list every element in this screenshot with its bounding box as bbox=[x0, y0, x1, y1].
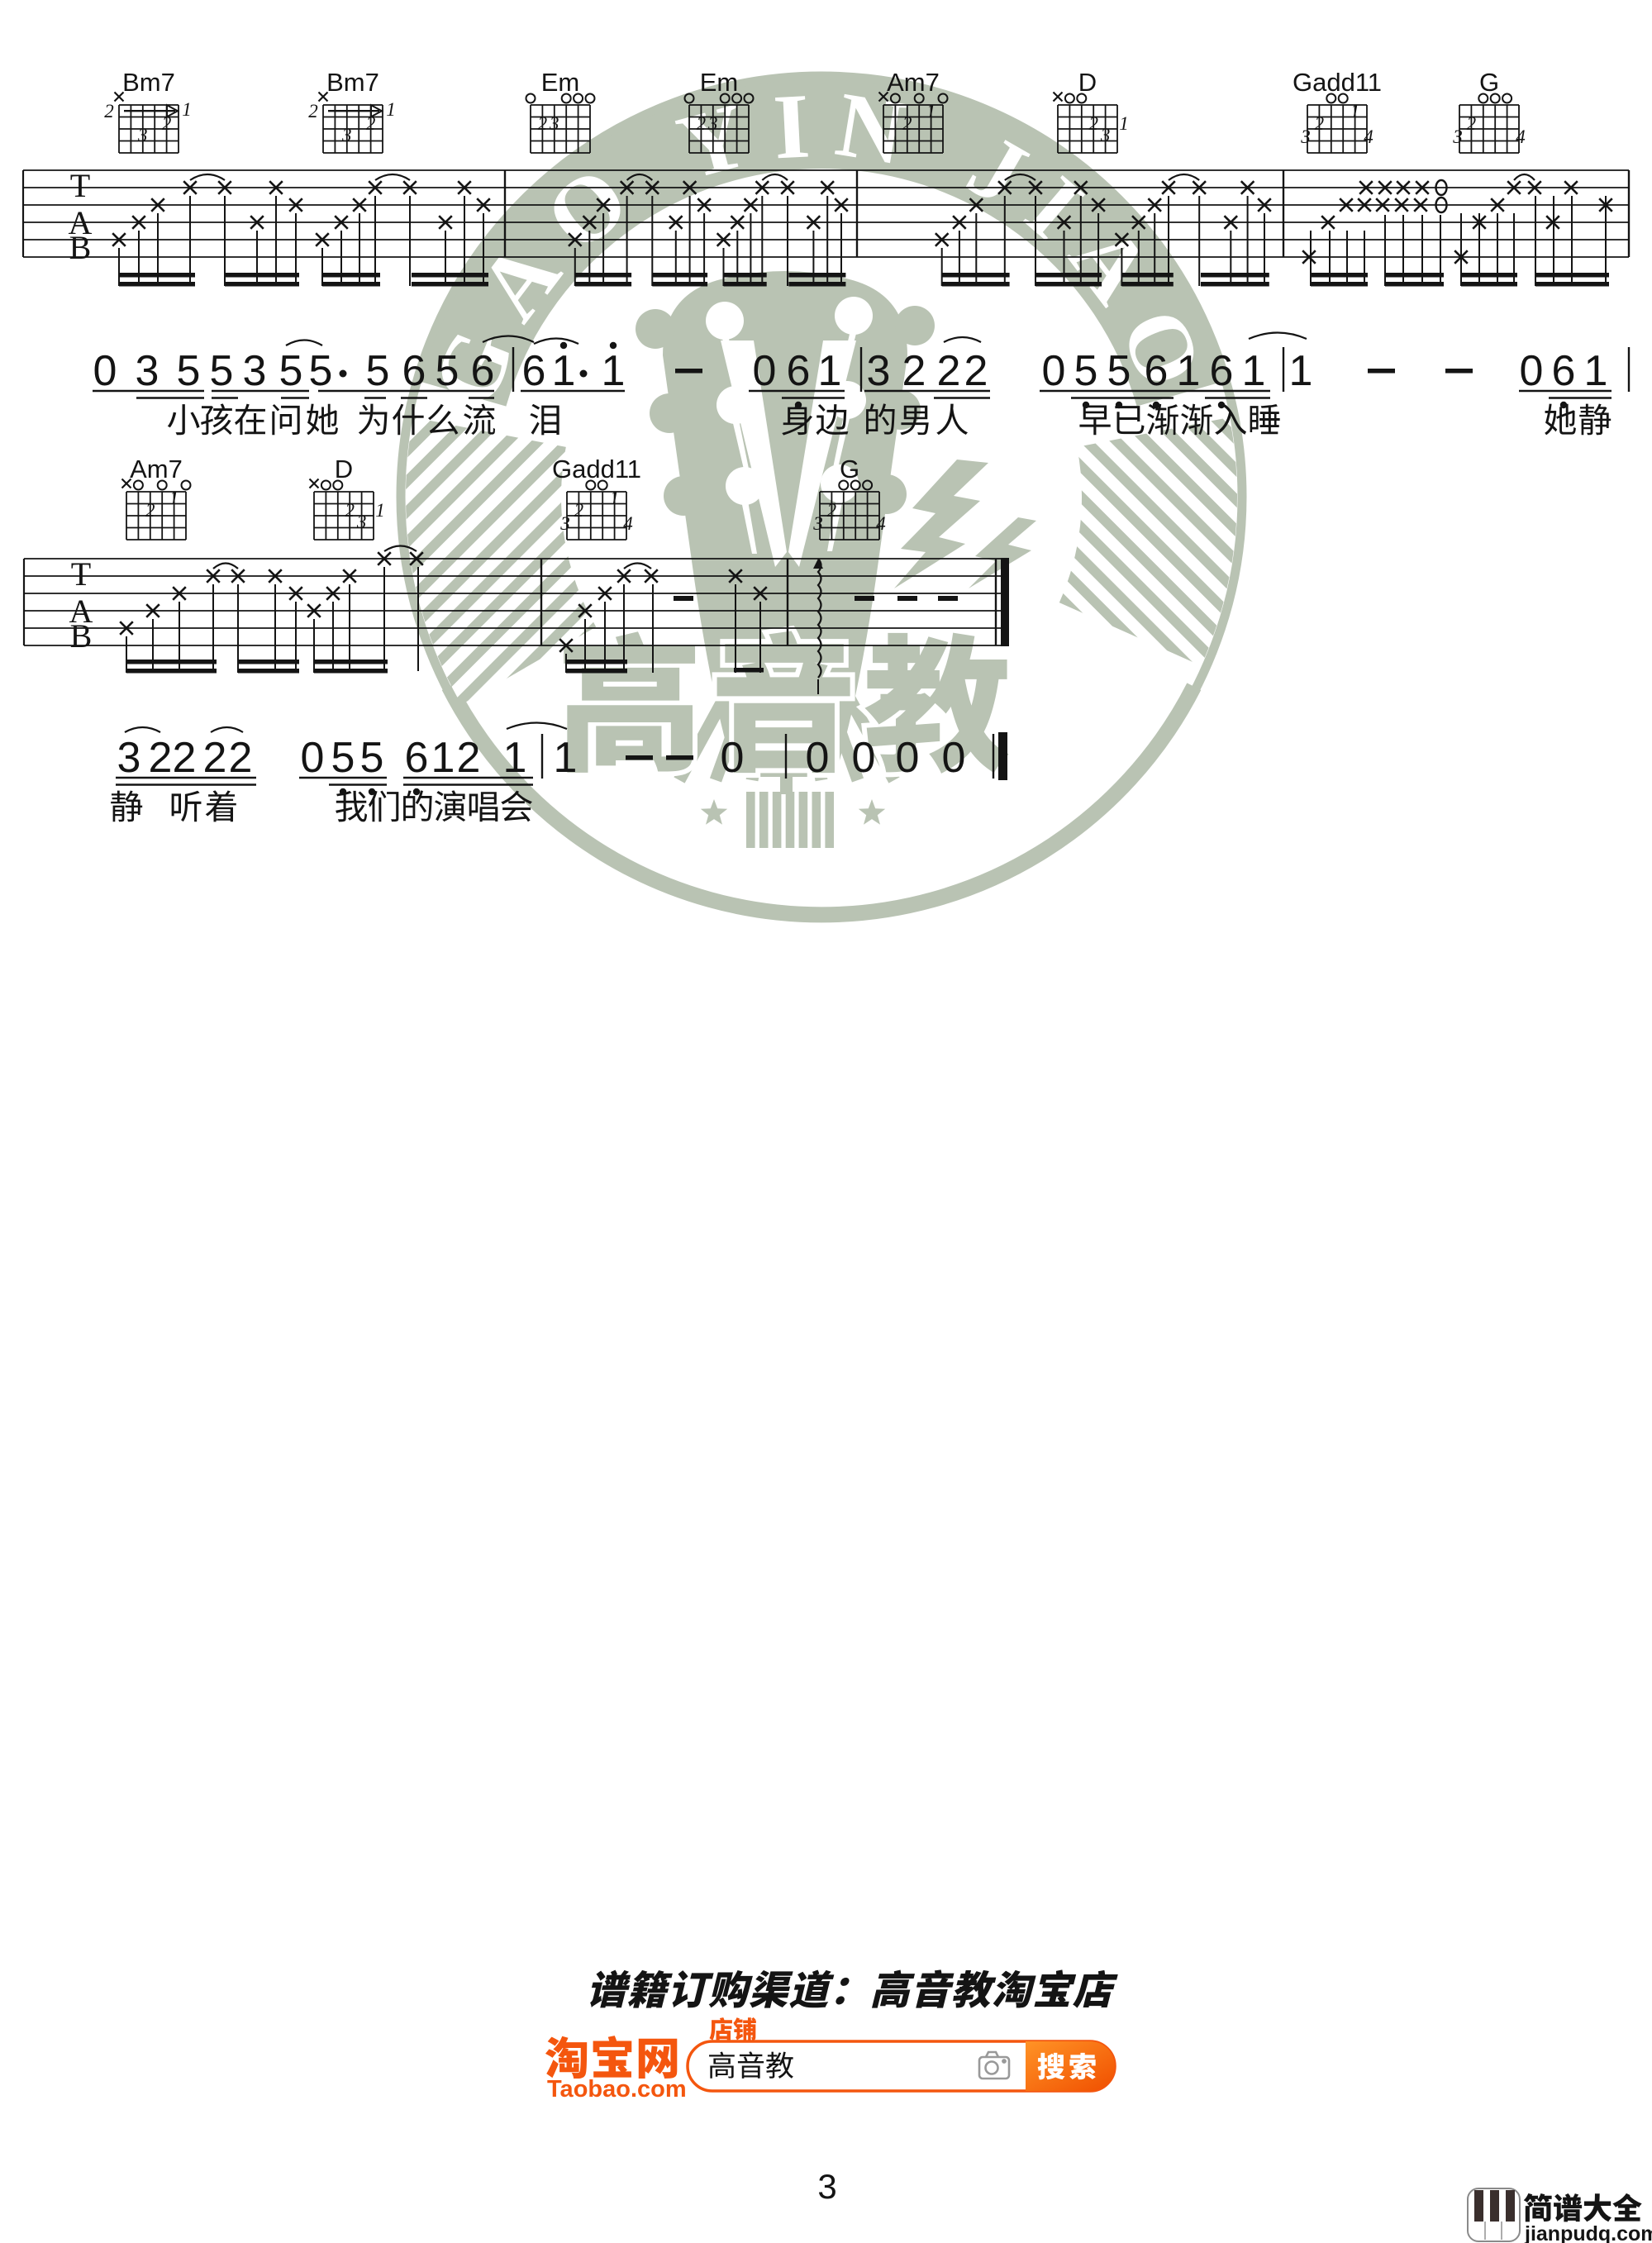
svg-text:3: 3 bbox=[341, 125, 352, 145]
svg-text:D: D bbox=[1078, 68, 1097, 97]
svg-text:jianpudq.com: jianpudq.com bbox=[1524, 2222, 1652, 2243]
svg-text:渐: 渐 bbox=[1146, 393, 1180, 442]
svg-text:4: 4 bbox=[876, 513, 886, 534]
svg-text:Bm7: Bm7 bbox=[326, 68, 379, 97]
svg-text:0: 0 bbox=[721, 734, 745, 782]
svg-text:渐: 渐 bbox=[1180, 393, 1214, 442]
svg-text:6: 6 bbox=[405, 734, 429, 782]
svg-text:2: 2 bbox=[229, 734, 253, 782]
svg-text:3: 3 bbox=[117, 734, 141, 782]
svg-text:B: B bbox=[70, 617, 93, 655]
svg-text:Am7: Am7 bbox=[130, 455, 183, 483]
svg-text:0: 0 bbox=[806, 734, 830, 782]
svg-text:3: 3 bbox=[559, 513, 570, 534]
svg-text:2: 2 bbox=[345, 500, 355, 521]
svg-text:Gadd11: Gadd11 bbox=[1293, 68, 1382, 97]
svg-text:着: 着 bbox=[205, 779, 239, 829]
svg-text:2: 2 bbox=[827, 500, 837, 521]
svg-text:1: 1 bbox=[1177, 347, 1201, 395]
svg-text:1: 1 bbox=[602, 347, 626, 395]
svg-text:什: 什 bbox=[392, 393, 426, 442]
svg-text:演: 演 bbox=[434, 779, 468, 829]
svg-text:3: 3 bbox=[1100, 125, 1111, 145]
svg-text:6: 6 bbox=[787, 347, 811, 395]
svg-text:1: 1 bbox=[503, 734, 527, 782]
svg-text:2: 2 bbox=[902, 347, 926, 395]
svg-text:孩: 孩 bbox=[200, 393, 234, 442]
svg-text:1: 1 bbox=[926, 101, 936, 121]
svg-text:G: G bbox=[840, 455, 859, 483]
svg-text:在: 在 bbox=[234, 393, 268, 442]
svg-text:2: 2 bbox=[937, 347, 961, 395]
svg-text:Am7: Am7 bbox=[887, 68, 940, 97]
svg-text:5: 5 bbox=[279, 347, 303, 395]
svg-text:2: 2 bbox=[697, 113, 707, 134]
svg-text:5: 5 bbox=[360, 734, 384, 782]
svg-text:1: 1 bbox=[1289, 347, 1313, 395]
svg-text:Em: Em bbox=[700, 68, 739, 97]
svg-text:0: 0 bbox=[753, 347, 777, 395]
svg-text:2: 2 bbox=[538, 113, 548, 134]
svg-text:5: 5 bbox=[366, 347, 390, 395]
svg-text:3: 3 bbox=[137, 125, 148, 145]
svg-text:3: 3 bbox=[817, 2167, 836, 2206]
svg-text:B: B bbox=[69, 229, 92, 266]
svg-text:流: 流 bbox=[463, 393, 497, 442]
svg-text:6: 6 bbox=[522, 347, 546, 395]
svg-text:Taobao.com: Taobao.com bbox=[547, 2076, 687, 2103]
svg-text:早: 早 bbox=[1078, 393, 1112, 442]
svg-text:0: 0 bbox=[1520, 347, 1544, 395]
svg-text:0: 0 bbox=[93, 347, 117, 395]
svg-text:1: 1 bbox=[1119, 113, 1129, 134]
svg-text:0: 0 bbox=[852, 734, 876, 782]
svg-text:她: 她 bbox=[306, 393, 340, 442]
svg-text:1: 1 bbox=[610, 488, 620, 508]
svg-text:2: 2 bbox=[104, 101, 114, 121]
svg-text:5: 5 bbox=[1107, 347, 1131, 395]
svg-text:Bm7: Bm7 bbox=[122, 68, 175, 97]
svg-text:3: 3 bbox=[707, 113, 718, 134]
svg-text:3: 3 bbox=[549, 113, 559, 134]
svg-text:已: 已 bbox=[1112, 393, 1146, 442]
svg-text:1: 1 bbox=[554, 734, 578, 782]
svg-text:6: 6 bbox=[1210, 347, 1234, 395]
svg-text:1: 1 bbox=[169, 488, 179, 508]
svg-text:3: 3 bbox=[812, 513, 823, 534]
svg-text:4: 4 bbox=[1516, 126, 1526, 147]
svg-text:6: 6 bbox=[471, 347, 495, 395]
svg-text:6: 6 bbox=[402, 347, 426, 395]
svg-text:高音教: 高音教 bbox=[707, 2043, 794, 2085]
svg-text:4: 4 bbox=[623, 513, 633, 534]
svg-text:谱籍订购渠道：高音教淘宝店: 谱籍订购渠道：高音教淘宝店 bbox=[586, 1958, 1118, 2016]
svg-text:T: T bbox=[70, 167, 90, 204]
svg-text:Gadd11: Gadd11 bbox=[552, 455, 641, 483]
svg-text:静: 静 bbox=[1578, 393, 1612, 442]
svg-text:我: 我 bbox=[335, 779, 369, 829]
svg-text:静: 静 bbox=[110, 779, 144, 829]
svg-text:泪: 泪 bbox=[529, 393, 563, 442]
svg-text:小: 小 bbox=[167, 393, 201, 442]
svg-text:的: 的 bbox=[401, 779, 435, 829]
svg-text:0: 0 bbox=[1042, 347, 1066, 395]
svg-text:睡: 睡 bbox=[1248, 393, 1282, 442]
svg-text:5: 5 bbox=[177, 347, 201, 395]
svg-text:搜索: 搜索 bbox=[1037, 2045, 1100, 2085]
svg-text:2: 2 bbox=[574, 500, 584, 521]
svg-text:1: 1 bbox=[1242, 347, 1266, 395]
svg-text:2: 2 bbox=[1315, 113, 1325, 134]
svg-text:1: 1 bbox=[431, 734, 455, 782]
svg-text:3: 3 bbox=[867, 347, 891, 395]
svg-text:3: 3 bbox=[356, 512, 367, 532]
svg-text:1: 1 bbox=[818, 347, 842, 395]
svg-text:5: 5 bbox=[331, 734, 355, 782]
svg-text:5: 5 bbox=[436, 347, 459, 395]
svg-text:问: 问 bbox=[269, 393, 303, 442]
svg-text:G: G bbox=[1479, 68, 1499, 97]
svg-text:听: 听 bbox=[169, 779, 203, 829]
svg-text:5: 5 bbox=[1074, 347, 1098, 395]
svg-text:3: 3 bbox=[243, 347, 267, 395]
svg-text:0: 0 bbox=[896, 734, 920, 782]
svg-text:4: 4 bbox=[1364, 126, 1373, 147]
svg-text:么: 么 bbox=[426, 393, 460, 442]
svg-text:1: 1 bbox=[375, 500, 385, 521]
svg-text:身: 身 bbox=[781, 393, 815, 442]
svg-text:6: 6 bbox=[1145, 347, 1169, 395]
svg-text:Em: Em bbox=[541, 68, 580, 97]
svg-text:为: 为 bbox=[357, 393, 391, 442]
svg-text:唱: 唱 bbox=[467, 779, 501, 829]
svg-text:男: 男 bbox=[899, 393, 933, 442]
svg-text:边: 边 bbox=[816, 393, 850, 442]
svg-text:T: T bbox=[71, 555, 91, 593]
svg-text:1: 1 bbox=[182, 99, 192, 120]
svg-text:2: 2 bbox=[308, 101, 318, 121]
svg-text:D: D bbox=[335, 455, 353, 483]
svg-text:2: 2 bbox=[457, 734, 481, 782]
svg-text:2: 2 bbox=[1467, 113, 1477, 134]
svg-text:2: 2 bbox=[366, 113, 376, 134]
svg-text:5: 5 bbox=[210, 347, 234, 395]
svg-text:6: 6 bbox=[1552, 347, 1576, 395]
svg-text:入: 入 bbox=[1214, 393, 1248, 442]
svg-text:2: 2 bbox=[1088, 113, 1098, 134]
svg-text:0: 0 bbox=[301, 734, 325, 782]
svg-text:1: 1 bbox=[1350, 101, 1360, 121]
svg-text:3: 3 bbox=[1300, 126, 1311, 147]
svg-text:2: 2 bbox=[145, 500, 155, 521]
svg-text:5: 5 bbox=[309, 347, 333, 395]
svg-text:1: 1 bbox=[552, 347, 576, 395]
svg-text:会: 会 bbox=[500, 779, 534, 829]
svg-text:2: 2 bbox=[162, 113, 172, 134]
svg-text:3: 3 bbox=[1452, 126, 1463, 147]
svg-text:2: 2 bbox=[149, 734, 173, 782]
svg-text:人: 人 bbox=[935, 393, 969, 442]
svg-text:2: 2 bbox=[902, 113, 912, 134]
svg-text:3: 3 bbox=[136, 347, 159, 395]
svg-text:1: 1 bbox=[386, 99, 396, 120]
svg-text:们: 们 bbox=[368, 779, 402, 829]
svg-text:她: 她 bbox=[1544, 393, 1578, 442]
svg-text:1: 1 bbox=[1584, 347, 1608, 395]
svg-text:2: 2 bbox=[173, 734, 197, 782]
svg-text:2: 2 bbox=[964, 347, 988, 395]
svg-text:2: 2 bbox=[203, 734, 227, 782]
svg-text:0: 0 bbox=[942, 734, 966, 782]
svg-text:的: 的 bbox=[864, 393, 897, 442]
